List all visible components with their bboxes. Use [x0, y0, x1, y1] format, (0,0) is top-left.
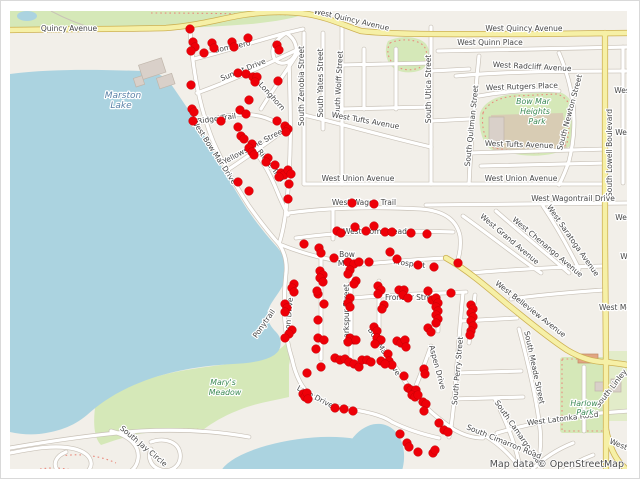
street-label: West Quinn Place — [457, 38, 523, 47]
map-marker[interactable] — [290, 288, 299, 297]
street-label: Wes — [615, 128, 627, 137]
street-label: West Wagon Trail — [332, 198, 396, 207]
map-marker[interactable] — [300, 240, 309, 249]
attribution: Map data © OpenStreetMap — [490, 459, 624, 469]
park-label: Harlow — [570, 399, 598, 408]
map-marker[interactable] — [362, 227, 371, 236]
map-marker[interactable] — [210, 44, 219, 53]
map-marker[interactable] — [378, 305, 387, 314]
map-marker[interactable] — [234, 178, 243, 187]
map-marker[interactable] — [319, 278, 328, 287]
park-label: Meadow — [209, 388, 242, 397]
map-marker[interactable] — [287, 170, 296, 179]
map-viewport[interactable]: Quincy AvenueWest Quincy AvenueWest Quin… — [10, 11, 627, 469]
map-marker[interactable] — [344, 270, 353, 279]
map-marker[interactable] — [447, 289, 456, 298]
street-label: Wes — [614, 86, 627, 95]
map-marker[interactable] — [466, 331, 475, 340]
map-marker[interactable] — [454, 259, 463, 268]
map-marker[interactable] — [381, 360, 390, 369]
map-marker[interactable] — [262, 158, 271, 167]
map-marker[interactable] — [217, 117, 226, 126]
map-marker[interactable] — [240, 135, 249, 144]
water-label: Lake — [110, 101, 132, 111]
map-marker[interactable] — [275, 173, 284, 182]
park-label: Park — [528, 117, 546, 126]
park-label: Park — [576, 408, 594, 417]
map-marker[interactable] — [386, 248, 395, 257]
street-label: We — [620, 252, 627, 261]
map-marker[interactable] — [284, 195, 293, 204]
map-marker[interactable] — [275, 46, 284, 55]
street-label: West Wagontrail Drive — [531, 194, 615, 203]
map-marker[interactable] — [400, 372, 409, 381]
map-marker[interactable] — [407, 229, 416, 238]
map-marker[interactable] — [432, 319, 441, 328]
park-label: Bow Mar — [516, 97, 550, 106]
building — [595, 382, 604, 391]
map-marker[interactable] — [405, 443, 414, 452]
map-marker[interactable] — [374, 290, 383, 299]
map-marker[interactable] — [370, 200, 379, 209]
map-marker[interactable] — [344, 338, 353, 347]
map-marker[interactable] — [314, 316, 323, 325]
map-marker[interactable] — [313, 287, 322, 296]
street-label: West Union Avenue — [322, 174, 395, 183]
map-svg: Quincy AvenueWest Quincy AvenueWest Quin… — [10, 11, 627, 469]
map-marker[interactable] — [242, 110, 251, 119]
map-marker[interactable] — [352, 336, 361, 345]
map-marker[interactable] — [430, 263, 439, 272]
map-marker[interactable] — [245, 187, 254, 196]
street-label: South Yates Street — [316, 48, 325, 117]
street-label: West Mo — [599, 303, 627, 312]
water-label: Marston — [105, 91, 142, 101]
map-marker[interactable] — [285, 180, 294, 189]
map-marker[interactable] — [431, 446, 440, 455]
street-label: South Zenobia Street — [297, 46, 306, 126]
map-marker[interactable] — [234, 123, 243, 132]
street-label: West Quincy Avenue — [485, 24, 563, 33]
map-marker[interactable] — [348, 199, 357, 208]
street-label: Larkspur Street — [342, 284, 351, 342]
map-marker[interactable] — [424, 287, 433, 296]
small-pond — [17, 11, 37, 21]
map-marker[interactable] — [330, 254, 339, 263]
map-marker[interactable] — [340, 405, 349, 414]
map-marker[interactable] — [423, 230, 432, 239]
street-label: Quincy Avenue — [41, 24, 98, 33]
map-marker[interactable] — [421, 370, 430, 379]
map-marker[interactable] — [337, 229, 346, 238]
map-marker[interactable] — [244, 34, 253, 43]
map-marker[interactable] — [320, 300, 329, 309]
map-marker[interactable] — [371, 340, 380, 349]
map-marker[interactable] — [282, 128, 291, 137]
map-marker[interactable] — [331, 404, 340, 413]
map-marker[interactable] — [355, 258, 364, 267]
map-marker[interactable] — [317, 249, 326, 258]
map-marker[interactable] — [189, 117, 198, 126]
map-marker[interactable] — [349, 407, 358, 416]
map-marker[interactable] — [351, 223, 360, 232]
map-marker[interactable] — [245, 96, 254, 105]
map-marker[interactable] — [346, 303, 355, 312]
map-marker[interactable] — [350, 280, 359, 289]
map-marker[interactable] — [274, 77, 283, 86]
map-marker[interactable] — [312, 345, 321, 354]
map-marker[interactable] — [230, 43, 239, 52]
map-screenshot-frame: Quincy AvenueWest Quincy AvenueWest Quin… — [0, 0, 640, 479]
map-marker[interactable] — [251, 78, 260, 87]
map-marker[interactable] — [414, 448, 423, 457]
park-near-wolff — [386, 37, 430, 72]
map-marker[interactable] — [320, 336, 329, 345]
map-marker[interactable] — [273, 117, 282, 126]
map-marker[interactable] — [414, 261, 423, 270]
map-marker[interactable] — [234, 69, 243, 78]
park-label: Mary's — [210, 378, 236, 387]
map-marker[interactable] — [396, 430, 405, 439]
map-marker[interactable] — [281, 308, 290, 317]
map-marker[interactable] — [444, 428, 453, 437]
map-marker[interactable] — [393, 255, 402, 264]
street-label: South Utica Street — [424, 55, 433, 124]
map-marker[interactable] — [187, 47, 196, 56]
street-label: West Union Avenue — [485, 174, 558, 183]
map-marker[interactable] — [365, 258, 374, 267]
map-marker[interactable] — [370, 222, 379, 231]
map-marker[interactable] — [200, 49, 209, 58]
map-marker[interactable] — [404, 294, 413, 303]
street-label: Wes — [615, 213, 627, 222]
map-marker[interactable] — [281, 334, 290, 343]
map-marker[interactable] — [402, 343, 411, 352]
map-marker[interactable] — [317, 363, 326, 372]
map-marker[interactable] — [271, 161, 280, 170]
street-label: South Lowell Boulevard — [605, 109, 614, 197]
map-marker[interactable] — [367, 358, 376, 367]
map-marker[interactable] — [303, 369, 312, 378]
building — [489, 117, 504, 141]
map-marker[interactable] — [186, 25, 195, 34]
map-marker[interactable] — [420, 407, 429, 416]
map-marker[interactable] — [304, 395, 313, 404]
map-marker[interactable] — [388, 228, 397, 237]
map-marker[interactable] — [250, 151, 259, 160]
park-label: Heights — [520, 107, 550, 116]
map-marker[interactable] — [427, 328, 436, 337]
map-marker[interactable] — [187, 81, 196, 90]
map-marker[interactable] — [190, 108, 199, 117]
